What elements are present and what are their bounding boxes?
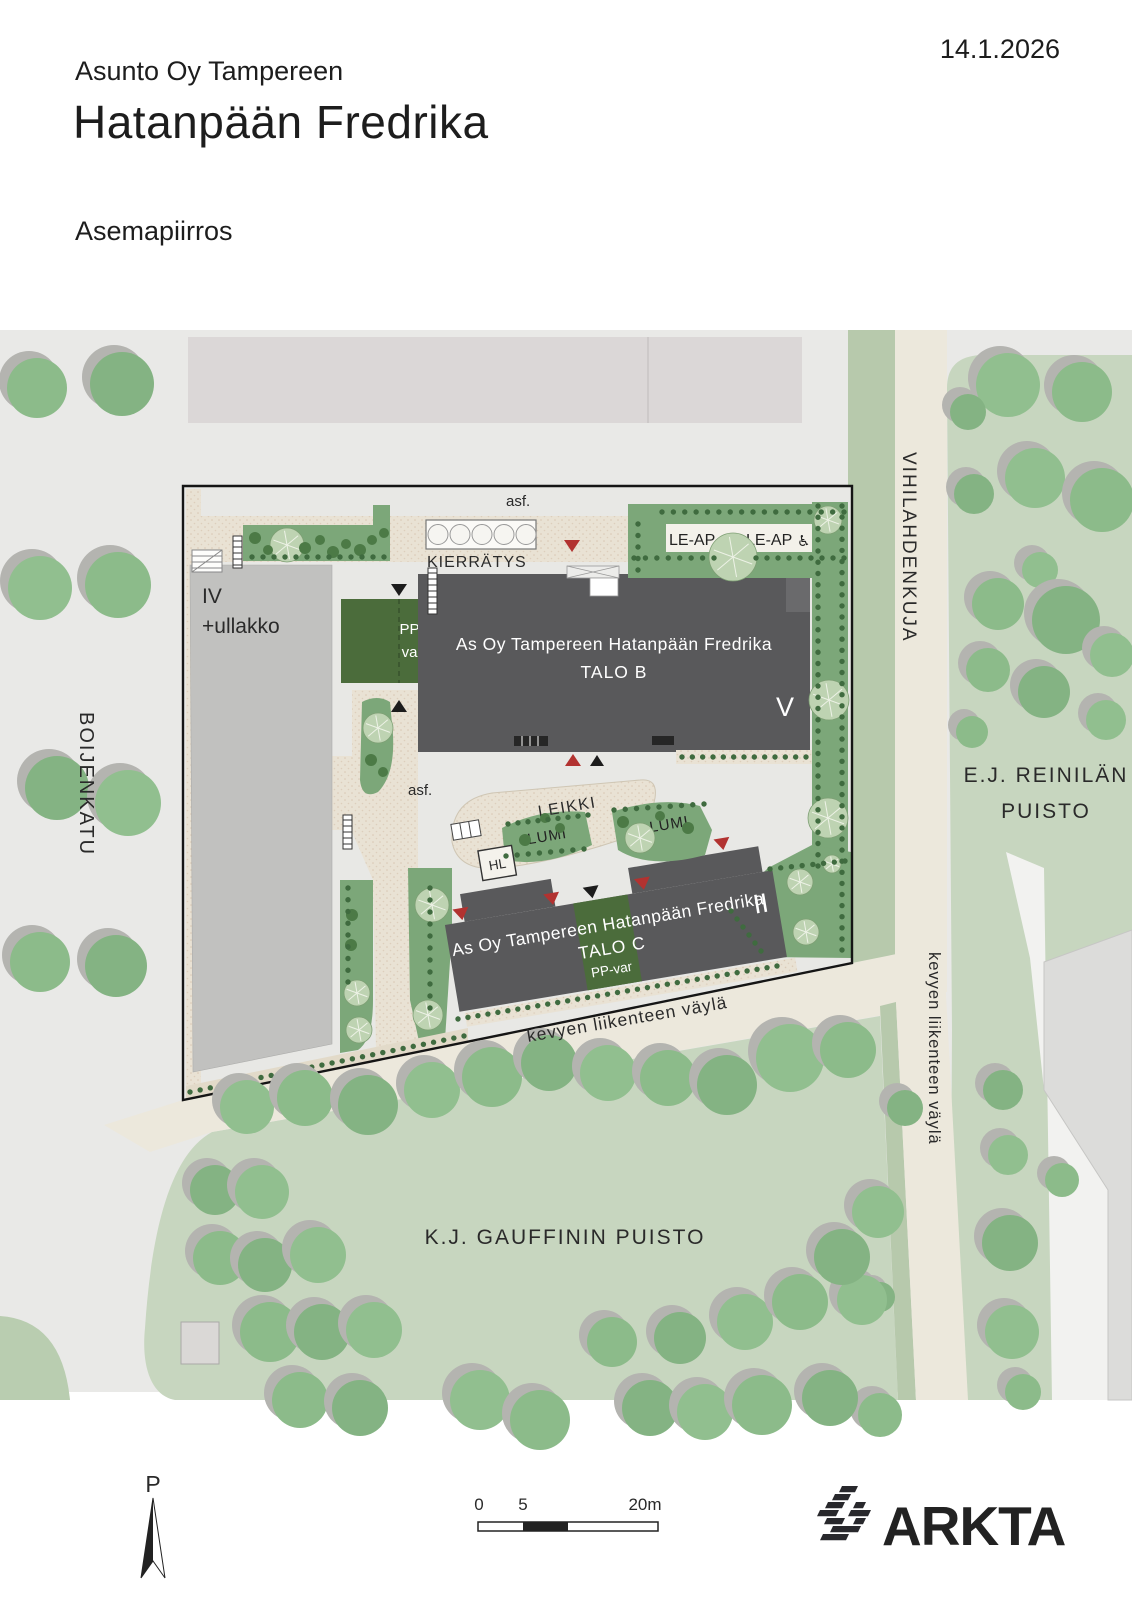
asphalt-label-top: asf.	[506, 493, 530, 510]
wheelchair-icon: ♿	[797, 533, 810, 550]
bench-icon	[652, 736, 674, 745]
park-label-east-2: PUISTO	[1001, 800, 1091, 823]
neighbor-building-north	[188, 337, 802, 423]
arkta-wordmark: ARKTA	[882, 1495, 1066, 1557]
site-plan-map: IV +ullakko PP- var As Oy Tampereen Hata…	[0, 0, 1132, 1600]
asphalt-label-mid: asf.	[408, 782, 432, 799]
park-structure	[181, 1322, 219, 1364]
bike-storage-b	[341, 599, 428, 683]
talo-b-notch	[786, 574, 810, 612]
bus-shelter: HL	[478, 845, 516, 880]
scale-20: 20m	[628, 1495, 661, 1514]
street-vihilahdenkuja	[895, 330, 947, 992]
existing-building-floors: IV	[202, 585, 222, 608]
existing-building-attic: +ullakko	[202, 615, 280, 638]
east-verge	[848, 330, 895, 1010]
street-label-east: VIHILAHDENKUJA	[898, 452, 919, 643]
recycling-bins	[426, 520, 536, 549]
north-label: P	[145, 1471, 160, 1497]
scale-0: 0	[474, 1495, 483, 1514]
bench-icon	[514, 736, 548, 746]
scale-bar: 0 5 20m	[474, 1495, 661, 1531]
north-arrow: P	[141, 1471, 165, 1578]
path-label-east: kevyen liikenteen väylä	[925, 952, 943, 1145]
arkta-tree-icon	[817, 1486, 871, 1540]
talo-b-floors: V	[776, 692, 794, 722]
park-label-east-1: E.J. REINILÄN	[964, 764, 1129, 787]
talo-b-name: As Oy Tampereen Hatanpään Fredrika	[456, 634, 772, 654]
existing-building	[190, 565, 332, 1072]
park-label-south: K.J. GAUFFININ PUISTO	[425, 1226, 706, 1249]
street-label-west: BOIJENKATU	[75, 712, 97, 856]
talo-b-id: TALO B	[581, 662, 648, 682]
leap-label-1: LE-AP	[669, 532, 715, 549]
recycling-label: KIERRÄTYS	[427, 553, 527, 571]
scale-5: 5	[518, 1495, 527, 1514]
building-talo-b: As Oy Tampereen Hatanpään Fredrika TALO …	[418, 566, 810, 752]
stairs-icon	[192, 550, 222, 572]
site-plan-page: Asunto Oy Tampereen Hatanpään Fredrika A…	[0, 0, 1132, 1600]
courtyard-planting-step	[373, 505, 390, 527]
arkta-logo: ARKTA	[817, 1486, 1066, 1557]
